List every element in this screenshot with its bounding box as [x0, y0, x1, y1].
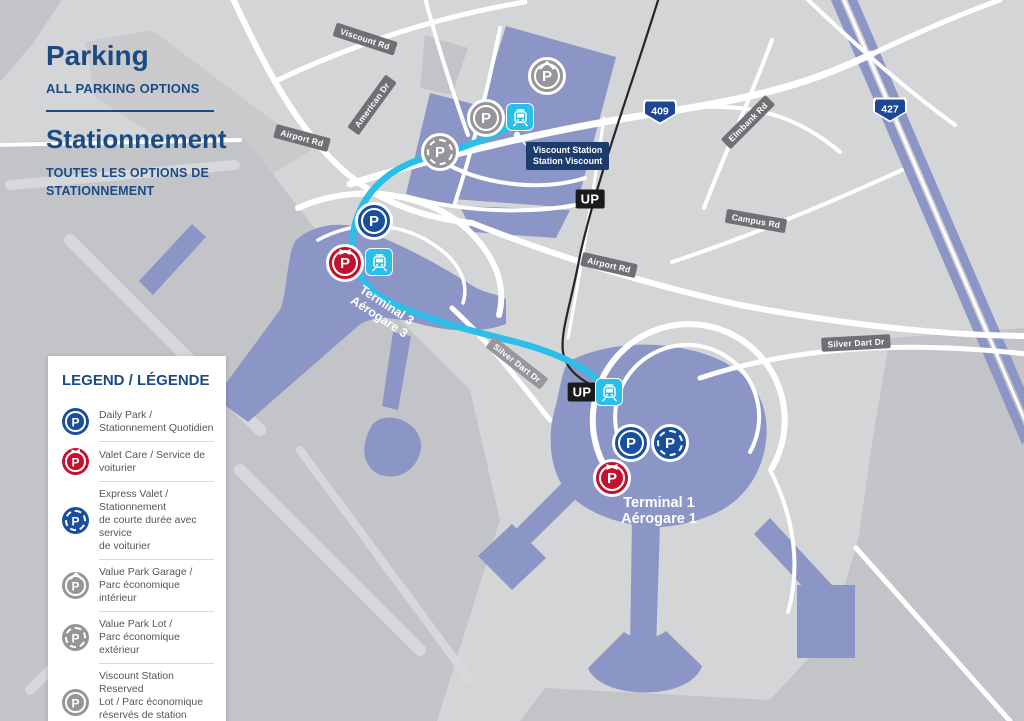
train-station-icon-viscount	[506, 103, 534, 131]
train-glyph	[511, 108, 530, 127]
terminal1-label-line1: Terminal 1	[621, 495, 697, 511]
train-glyph	[370, 253, 389, 272]
legend-item-viscount-reserved: P Viscount Station Reserved Lot / Parc é…	[62, 664, 214, 721]
up-express-badge-terminal1: UP	[568, 383, 597, 402]
valet-care-marker-terminal1: P	[593, 459, 631, 497]
legend-item-label: Daily Park / Stationnement Quotidien	[99, 409, 213, 435]
train-glyph	[600, 383, 619, 402]
p-letter: P	[71, 631, 79, 645]
p-letter: P	[71, 455, 79, 469]
train-station-icon-terminal1	[595, 378, 623, 406]
page-title-en: Parking	[46, 40, 276, 72]
legend-item-label: Value Park Lot / Parc économique extérie…	[99, 618, 214, 657]
legend-item-express-valet: P Express Valet / Stationnement de court…	[62, 482, 214, 559]
p-letter: P	[369, 213, 379, 230]
station-badge-line2: Station Viscount	[533, 156, 602, 167]
station-badge-line1: Viscount Station	[533, 145, 602, 156]
train-station-icon-terminal3	[365, 248, 393, 276]
viscount-reserved-lot-marker: P	[467, 99, 505, 137]
legend-item-value-park-garage: P Value Park Garage / Parc économique in…	[62, 560, 214, 611]
p-letter: P	[626, 435, 636, 452]
daily-park-marker-terminal3: P	[355, 202, 393, 240]
legend-item-label: Express Valet / Stationnement de courte …	[99, 488, 214, 553]
p-letter: P	[665, 435, 675, 452]
title-divider	[46, 110, 214, 112]
title-block: Parking ALL PARKING OPTIONS Stationnemen…	[46, 40, 276, 200]
terminal1-label: Terminal 1 Aérogare 1	[621, 495, 697, 527]
valet-bow-icon	[607, 464, 618, 470]
legend-item-value-park-lot: P Value Park Lot / Parc économique extér…	[62, 612, 214, 663]
value-park-lot-marker: P	[421, 133, 459, 171]
legend-panel: LEGEND / LÉGENDE P Daily Park / Stationn…	[48, 356, 226, 721]
p-letter: P	[71, 415, 79, 429]
express-valet-marker-terminal1: P	[651, 424, 689, 462]
p-letter: P	[71, 696, 79, 710]
p-letter: P	[607, 470, 617, 487]
legend-item-daily-park: P Daily Park / Stationnement Quotidien	[62, 402, 214, 441]
parking-map-canvas: Viscount Rd American Dr Airport Rd Airpo…	[0, 0, 1024, 721]
value-park-garage-icon: P	[62, 572, 89, 599]
valet-care-icon: P	[62, 448, 89, 475]
page-subtitle-fr: TOUTES LES OPTIONS DE STATIONNEMENT	[46, 164, 276, 200]
express-valet-icon: P	[62, 507, 89, 534]
p-letter: P	[71, 514, 79, 528]
valet-bow-icon	[71, 449, 80, 454]
p-letter: P	[340, 255, 350, 272]
terminal1-label-line2: Aérogare 1	[621, 511, 697, 527]
legend-item-label: Valet Care / Service de voiturier	[99, 449, 214, 475]
value-park-lot-icon: P	[62, 624, 89, 651]
legend-title: LEGEND / LÉGENDE	[62, 372, 214, 389]
legend-item-valet-care: P Valet Care / Service de voiturier	[62, 442, 214, 481]
page-subtitle-en: ALL PARKING OPTIONS	[46, 81, 276, 96]
up-express-badge-mid: UP	[576, 190, 605, 209]
p-letter: P	[481, 110, 491, 127]
p-letter: P	[435, 144, 445, 161]
valet-care-marker-terminal3: P	[326, 244, 364, 282]
value-park-garage-marker: P	[528, 57, 566, 95]
valet-bow-icon	[340, 249, 351, 255]
viscount-station-reserved-icon: P	[62, 689, 89, 716]
page-title-fr: Stationnement	[46, 124, 276, 155]
viscount-station-badge: Viscount Station Station Viscount	[526, 142, 609, 170]
legend-item-label: Value Park Garage / Parc économique inté…	[99, 566, 214, 605]
legend-item-label: Viscount Station Reserved Lot / Parc éco…	[99, 670, 214, 721]
daily-park-icon: P	[62, 408, 89, 435]
daily-park-marker-terminal1: P	[612, 424, 650, 462]
